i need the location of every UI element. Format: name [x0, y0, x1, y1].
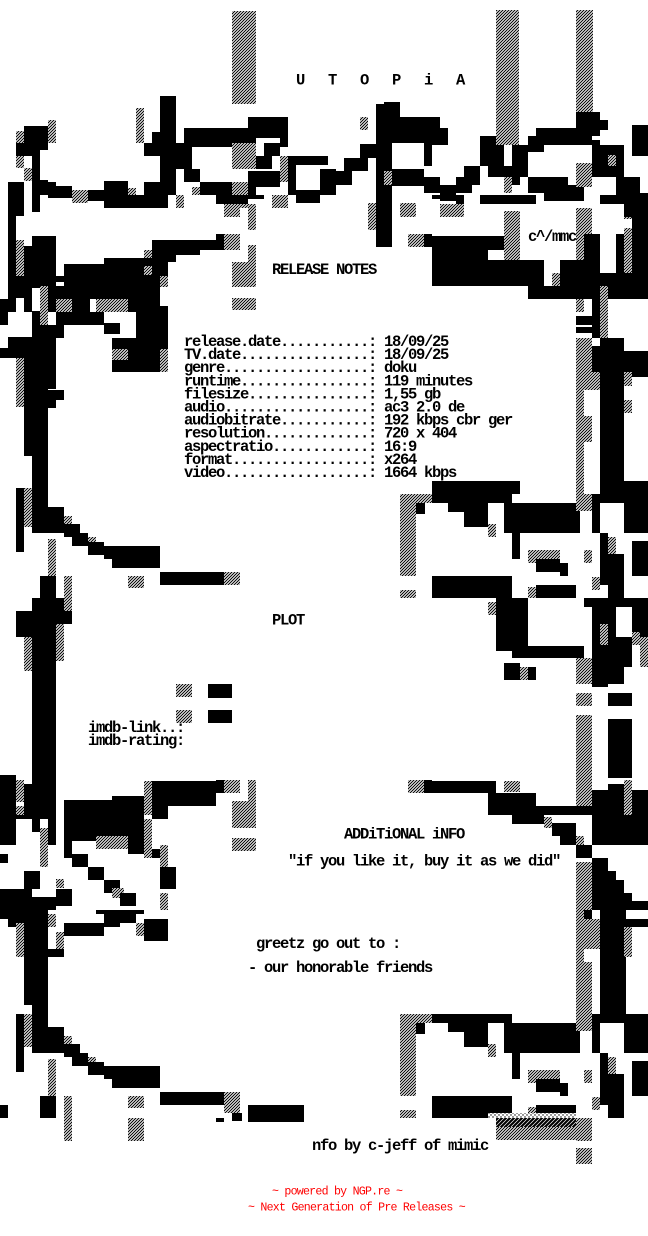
svg-text:c^/mmc: c^/mmc — [528, 228, 577, 246]
svg-text:"if you like it, buy it as we: "if you like it, buy it as we did" — [288, 853, 560, 871]
svg-text:ADDiTiONAL iNFO: ADDiTiONAL iNFO — [344, 826, 465, 844]
svg-text:RELEASE NOTES: RELEASE NOTES — [272, 261, 377, 279]
svg-text:imdb-rating:: imdb-rating: — [88, 732, 184, 750]
svg-text:video..................: 1664: video..................: 1664 kbps — [184, 464, 457, 482]
svg-text:- our honorable friends: - our honorable friends — [248, 959, 433, 977]
svg-text:U T O P i A: U T O P i A — [296, 72, 466, 90]
svg-text:PLOT: PLOT — [272, 612, 305, 630]
svg-text:~ Next Generation of Pre Relea: ~ Next Generation of Pre Releases ~ — [248, 1202, 466, 1215]
svg-text:nfo by c-jeff of mimic: nfo by c-jeff of mimic — [312, 1137, 489, 1155]
svg-text:~ powered by NGP.re ~: ~ powered by NGP.re ~ — [272, 1186, 403, 1199]
svg-text:greetz go out to :: greetz go out to : — [256, 935, 400, 953]
